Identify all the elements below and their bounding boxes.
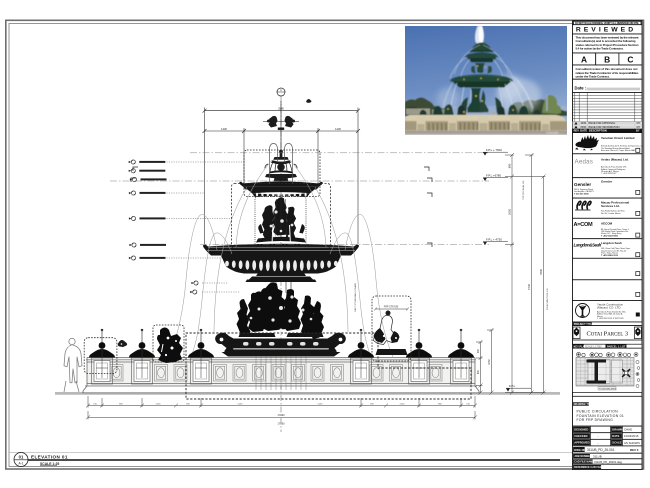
svg-text:600: 600 xyxy=(477,369,480,374)
svg-text:5.4 for action by the Trade Co: 5.4 for action by the Trade Contractor. xyxy=(576,46,624,50)
svg-text:Gensler: Gensler xyxy=(601,180,613,184)
svg-text:DRAWING TITLE: DRAWING TITLE xyxy=(574,403,594,406)
svg-text:REV: REV xyxy=(574,129,580,133)
svg-text:Aedas: Aedas xyxy=(575,159,594,166)
svg-text:FOR FRP DRAWING: FOR FRP DRAWING xyxy=(577,418,614,422)
svg-text:F.P.L +6780: F.P.L +6780 xyxy=(486,174,501,178)
svg-text:1050: 1050 xyxy=(488,359,491,365)
svg-text:Executive Offices-L2, Taipa, M: Executive Offices-L2, Taipa, Macau SAR xyxy=(601,149,636,152)
svg-text:450: 450 xyxy=(477,348,480,353)
svg-text:A=COM: A=COM xyxy=(574,222,593,228)
svg-text:CH: CH xyxy=(637,123,641,125)
svg-text:Services Ltd.: Services Ltd. xyxy=(601,204,620,208)
svg-text:A: A xyxy=(581,55,587,65)
svg-text:Aedas (Macau) Ltd.: Aedas (Macau) Ltd. xyxy=(601,157,629,161)
svg-text:ELEVATION 01: ELEVATION 01 xyxy=(31,455,68,460)
svg-text:T +853 2837 5521 F 2837 5529: T +853 2837 5521 F 2837 5529 xyxy=(597,318,624,320)
svg-text:T 213.327.3600: T 213.327.3600 xyxy=(574,194,589,196)
svg-text:Date :: Date : xyxy=(575,85,587,90)
svg-text:under the Trade Contract.: under the Trade Contract. xyxy=(576,74,610,78)
svg-text:7600: 7600 xyxy=(539,269,543,275)
svg-text:Gensler: Gensler xyxy=(574,182,591,187)
svg-text:A-1: A-1 xyxy=(19,462,24,466)
svg-text:CH: CH xyxy=(637,127,641,129)
svg-text:2156: 2156 xyxy=(318,403,324,405)
svg-text:2156: 2156 xyxy=(400,403,406,405)
svg-text:10/04/2016: 10/04/2016 xyxy=(624,434,639,438)
svg-text:2050: 2050 xyxy=(508,209,512,215)
svg-text:Langdon Seah: Langdon Seah xyxy=(601,241,622,245)
svg-text:FOUNTAIN POOL LVL: FOUNTAIN POOL LVL xyxy=(546,287,549,310)
svg-text:311UB_PD_26001.dwg: 311UB_PD_26001.dwg xyxy=(594,460,622,464)
svg-text:DATE: DATE xyxy=(580,129,587,133)
svg-text:REVIEWED: REVIEWED xyxy=(576,27,636,34)
svg-text:T +852 3922 9000: T +852 3922 9000 xyxy=(601,236,619,238)
svg-text:B: B xyxy=(604,55,610,65)
svg-text:DATE: DATE xyxy=(612,434,619,438)
svg-text:890: 890 xyxy=(508,163,512,168)
svg-text:05/03: 05/03 xyxy=(581,127,587,129)
svg-text:APPROVED: APPROVED xyxy=(574,441,589,445)
svg-text:CAD FILE NAME: CAD FILE NAME xyxy=(574,461,594,464)
svg-text:CAST STONE BALUSTRADE: CAST STONE BALUSTRADE xyxy=(354,282,357,312)
svg-text:SCALE 1:17500: SCALE 1:17500 xyxy=(585,345,602,348)
svg-text:-: - xyxy=(598,434,599,438)
svg-text:CHECKED: CHECKED xyxy=(574,434,587,438)
svg-text:F.P.L: F.P.L xyxy=(509,384,516,388)
svg-text:T +853 2833 1027: T +853 2833 1027 xyxy=(601,173,616,175)
svg-text:Venetian Orient Limited: Venetian Orient Limited xyxy=(601,136,635,140)
svg-text:T +853 2883 3013: T +853 2883 3013 xyxy=(601,255,619,257)
svg-text:311UB: 311UB xyxy=(593,454,602,458)
svg-text:TOP OF FINIAL LVL: TOP OF FINIAL LVL xyxy=(522,179,525,200)
svg-text:REFERENCE CAD FILE NAME: REFERENCE CAD FILE NAME xyxy=(574,466,610,469)
svg-text:JOB NUMBER: JOB NUMBER xyxy=(574,454,592,458)
svg-text:1430: 1430 xyxy=(221,127,227,131)
svg-text:Los Angeles, CA 90071: Los Angeles, CA 90071 xyxy=(574,190,594,193)
svg-text:CHAD: CHAD xyxy=(624,428,632,432)
svg-text:01: 01 xyxy=(19,454,24,459)
svg-text:COTAI PARCEL 3: COTAI PARCEL 3 xyxy=(587,330,629,337)
svg-text:F.P.L + 7600: F.P.L + 7600 xyxy=(486,148,502,152)
svg-text:-: - xyxy=(598,441,599,445)
svg-text:10/04: 10/04 xyxy=(581,123,587,125)
svg-text:DESIGNED: DESIGNED xyxy=(574,428,588,432)
svg-text:AS SHOWN: AS SHOWN xyxy=(624,441,640,445)
svg-text:ISSUE FOR APPROVAL: ISSUE FOR APPROVAL xyxy=(588,122,616,125)
svg-text:©copyright: ©copyright xyxy=(546,131,559,135)
svg-text:ISSUE FOR INFORMATION: ISSUE FOR INFORMATION xyxy=(588,126,620,129)
svg-text:AECOM: AECOM xyxy=(601,221,613,225)
svg-text:SCALE: SCALE xyxy=(612,441,621,445)
svg-text:REV 0: REV 0 xyxy=(630,448,639,452)
svg-text:F.P.L + 4730: F.P.L + 4730 xyxy=(486,238,502,242)
svg-text:17160: 17160 xyxy=(277,422,285,426)
svg-text:FRP STATUE: FRP STATUE xyxy=(384,306,399,309)
svg-text:C: C xyxy=(627,55,633,65)
svg-text:Langdon&Seah: Langdon&Seah xyxy=(574,242,602,247)
svg-text:2156: 2156 xyxy=(156,403,162,405)
svg-text:SCALE 1:25: SCALE 1:25 xyxy=(40,462,59,466)
svg-text:DRAWN: DRAWN xyxy=(612,428,622,432)
svg-text:No. 28, 2 andar, Macau: No. 28, 2 andar, Macau xyxy=(601,212,621,215)
svg-text:(Macau) CO. LTD.: (Macau) CO. LTD. xyxy=(597,306,621,310)
svg-text:1430: 1430 xyxy=(335,127,341,131)
svg-text:FOUNTAIN AREA: FOUNTAIN AREA xyxy=(599,387,617,390)
svg-text:4730: 4730 xyxy=(527,284,531,290)
svg-text:17160: 17160 xyxy=(277,413,285,417)
svg-text:DESCRIPTION: DESCRIPTION xyxy=(589,129,607,133)
svg-text:2156: 2156 xyxy=(238,403,244,405)
svg-text:PARCEL 1, LOT 1: PARCEL 1, LOT 1 xyxy=(607,345,628,348)
svg-text:311UB_PD_26-001: 311UB_PD_26-001 xyxy=(587,448,615,452)
svg-text:DWG NO: DWG NO xyxy=(574,448,585,452)
svg-text:BY: BY xyxy=(636,129,640,133)
